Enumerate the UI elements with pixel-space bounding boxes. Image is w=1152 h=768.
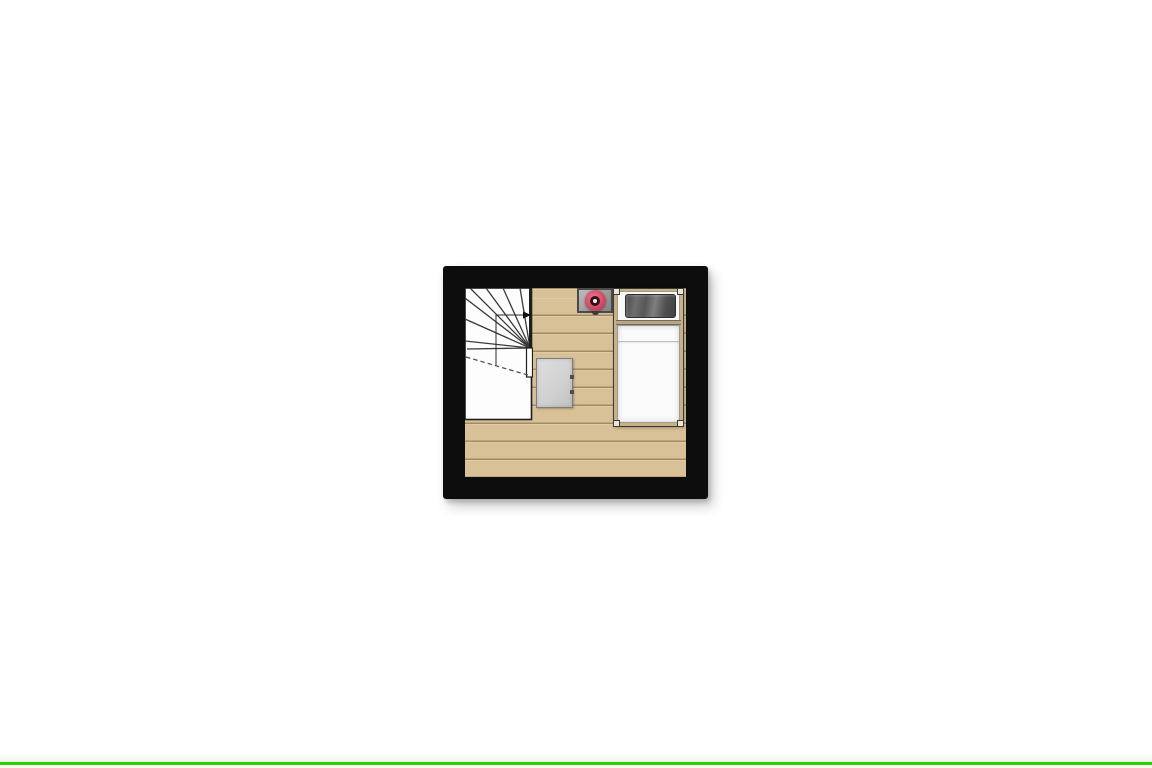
bottom-accent-bar — [0, 754, 1152, 768]
basin-drain — [593, 299, 597, 303]
basin-unit — [577, 288, 613, 313]
floorplan-image — [443, 266, 708, 499]
bed-pillow — [625, 294, 676, 318]
bed-post — [613, 420, 620, 427]
basin-tap — [592, 311, 599, 315]
bed-mattress — [617, 325, 680, 423]
bed-post — [677, 420, 684, 427]
staircase-diagram — [465, 288, 533, 421]
bed-sheet-fold-line — [618, 341, 679, 342]
basin-bowl-inner — [590, 296, 600, 306]
room-floor — [465, 288, 686, 477]
stair-newel-post — [527, 348, 533, 377]
staircase-outline — [465, 288, 532, 420]
cabinet — [536, 358, 573, 408]
cabinet-handle-mark — [570, 390, 574, 394]
basin-bowl — [585, 290, 606, 311]
bed-post — [613, 288, 620, 295]
bed-headboard — [617, 291, 680, 321]
single-bed — [613, 288, 684, 427]
bed-post — [677, 288, 684, 295]
bottom-accent-glow — [0, 754, 1152, 762]
cabinet-handle-mark — [570, 375, 574, 379]
